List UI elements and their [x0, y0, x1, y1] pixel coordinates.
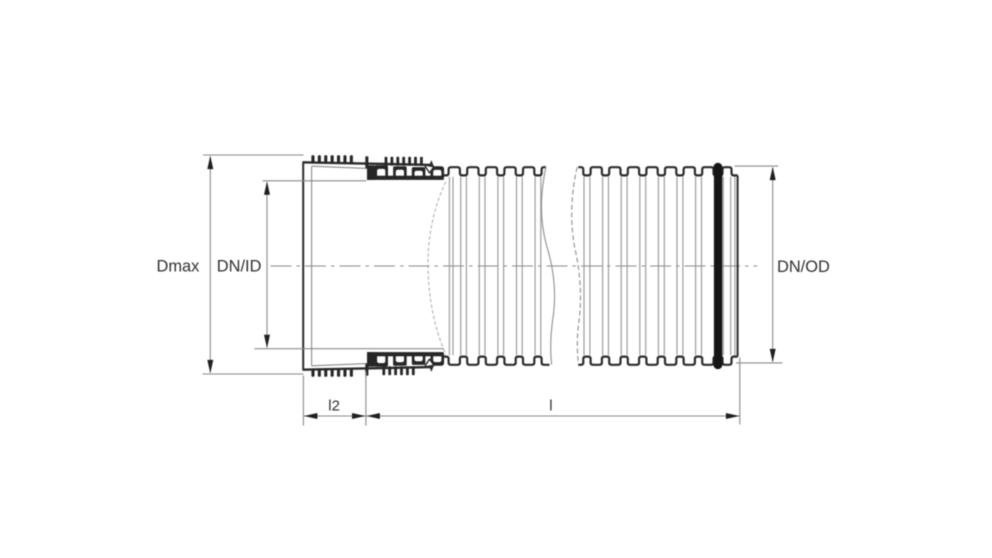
svg-text:DN/OD: DN/OD	[777, 258, 830, 276]
svg-text:DN/ID: DN/ID	[217, 258, 262, 276]
svg-text:l: l	[549, 398, 552, 415]
svg-text:l2: l2	[328, 398, 340, 415]
svg-text:Dmax: Dmax	[157, 258, 201, 276]
